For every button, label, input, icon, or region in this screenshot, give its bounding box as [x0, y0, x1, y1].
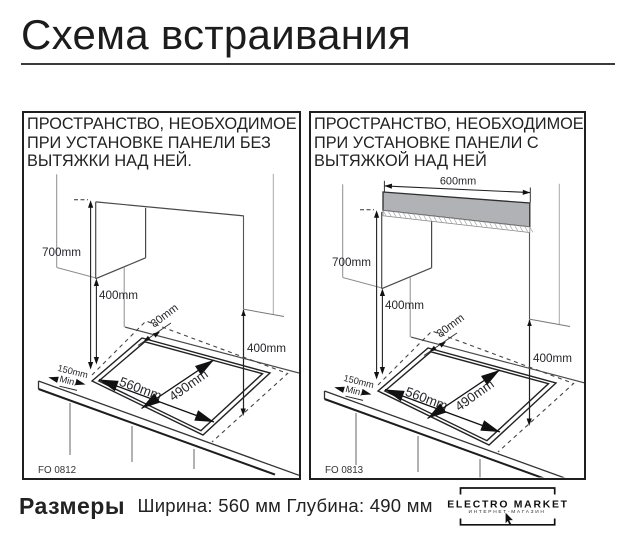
svg-text:700mm: 700mm [332, 256, 371, 269]
svg-text:400mm: 400mm [385, 299, 424, 312]
svg-text:400mm: 400mm [533, 352, 572, 365]
svg-text:ИНТЕРНЕТ-МАГАЗИН: ИНТЕРНЕТ-МАГАЗИН [468, 509, 545, 515]
svg-text:700mm: 700mm [42, 246, 81, 259]
svg-text:490mm: 490mm [452, 376, 497, 414]
svg-text:80mm: 80mm [435, 312, 467, 340]
svg-text:400mm: 400mm [99, 289, 138, 302]
svg-text:400mm: 400mm [247, 342, 286, 355]
svg-text:490mm: 490mm [166, 366, 211, 404]
svg-text:80mm: 80mm [149, 302, 181, 330]
svg-text:600mm: 600mm [440, 175, 476, 187]
